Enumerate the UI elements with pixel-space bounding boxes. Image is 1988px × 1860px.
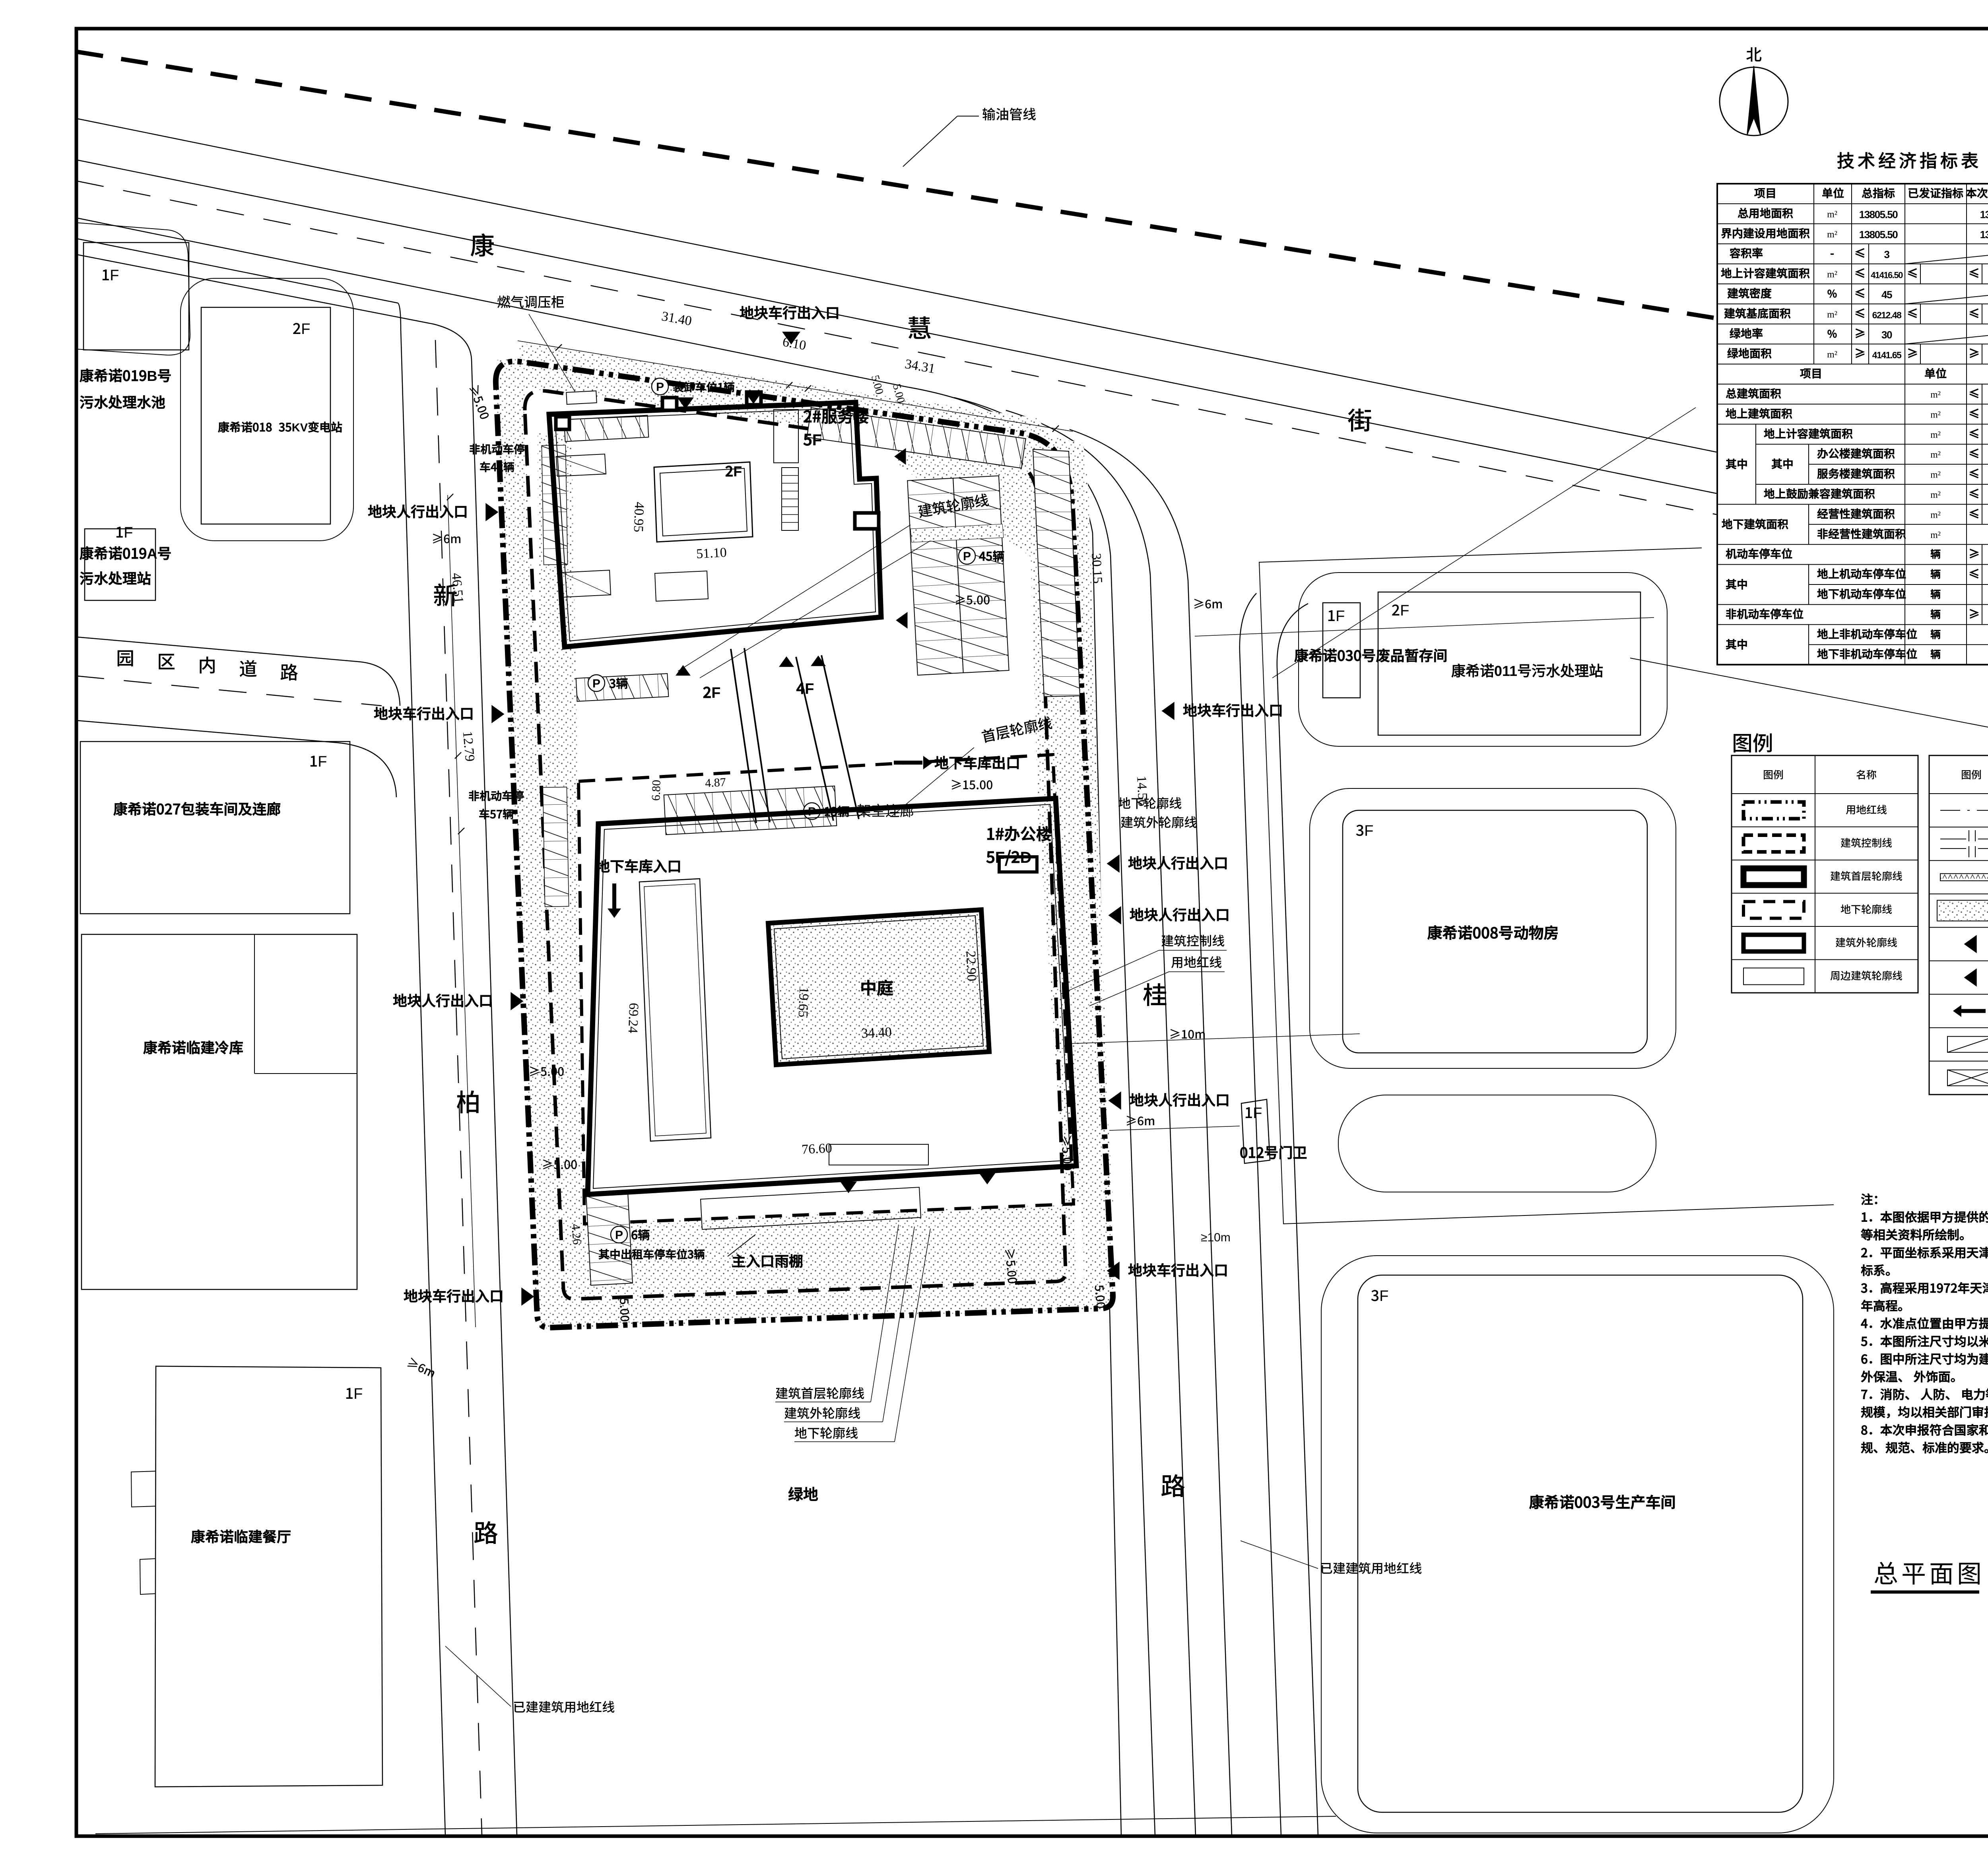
svg-text:6212.48: 6212.48 [1872,310,1902,320]
svg-text:012号门卫: 012号门卫 [1240,1142,1307,1162]
svg-text:≥10m: ≥10m [1201,1231,1231,1244]
svg-text:≥: ≥ [1907,345,1918,361]
svg-text:辆: 辆 [1930,586,1941,601]
svg-text:绿地面积: 绿地面积 [1727,345,1772,361]
svg-text:69.24: 69.24 [625,1002,641,1033]
svg-text:康希诺003号生产车间: 康希诺003号生产车间 [1529,1490,1676,1512]
svg-text:≤: ≤ [1969,566,1980,582]
svg-text:地下机动车停车位: 地下机动车停车位 [1817,586,1906,602]
svg-text:其中出租车停车位3辆: 其中出租车停车位3辆 [598,1246,705,1262]
svg-text:m²: m² [1930,470,1941,480]
svg-text:m²: m² [1930,530,1941,540]
svg-text:地下轮廓线: 地下轮廓线 [794,1423,858,1442]
svg-text:1F: 1F [1327,604,1345,625]
svg-text:地块车行出入口: 地块车行出入口 [1128,1259,1228,1280]
svg-text:项目: 项目 [1800,365,1822,381]
svg-text:≤: ≤ [1907,265,1918,281]
svg-text:图例: 图例 [1763,767,1784,782]
svg-text:地块车行出入口: 地块车行出入口 [374,703,474,723]
svg-text:≥: ≥ [1854,325,1866,341]
svg-text:建筑基底面积: 建筑基底面积 [1724,305,1791,321]
svg-text:地下车库入口: 地下车库入口 [596,855,681,876]
svg-text:2F: 2F [703,680,721,702]
svg-text:m²: m² [1930,510,1941,520]
svg-text:建筑控制线: 建筑控制线 [1840,835,1892,850]
svg-text:康希诺019B号: 康希诺019B号 [79,365,172,385]
svg-text:5．本图所注尺寸均以米为单位。: 5．本图所注尺寸均以米为单位。 [1861,1332,1988,1349]
svg-text:P: P [615,1229,623,1242]
svg-text:地块车行出入口: 地块车行出入口 [404,1285,504,1306]
svg-text:辆: 辆 [1930,546,1941,561]
svg-text:内: 内 [198,651,216,678]
svg-text:4.87: 4.87 [705,776,726,790]
svg-text:2．平面坐标系采用天津市2000年任意直角坐: 2．平面坐标系采用天津市2000年任意直角坐 [1861,1243,1988,1261]
svg-text:桂: 桂 [1143,975,1167,1011]
svg-text:3: 3 [1884,249,1890,260]
svg-text:19.65: 19.65 [796,986,812,1017]
svg-text:8．本次申报符合国家和天津市相关法律、法: 8．本次申报符合国家和天津市相关法律、法 [1861,1420,1988,1438]
svg-text:地块人行出入口: 地块人行出入口 [1130,904,1230,924]
svg-text:康希诺019A号: 康希诺019A号 [79,542,172,563]
svg-text:≥15.00: ≥15.00 [950,775,993,793]
svg-text:3．高程采用1972年天津市大沽高程系， 2015: 3．高程采用1972年天津市大沽高程系， 2015 [1861,1278,1988,1296]
svg-text:技术经济指标表: 技术经济指标表 [1837,151,1982,171]
svg-text:m²: m² [1827,209,1837,219]
svg-text:地下非机动车停车位: 地下非机动车停车位 [1817,646,1917,662]
svg-text:装卸车位1辆: 装卸车位1辆 [673,379,735,395]
svg-text:≥5.00: ≥5.00 [1058,1134,1077,1171]
svg-text:建筑外轮廓线: 建筑外轮廓线 [1835,935,1897,949]
svg-text:地上非机动车停车位: 地上非机动车停车位 [1817,626,1917,642]
svg-text:3辆: 3辆 [609,674,628,691]
svg-text:车42辆: 车42辆 [480,459,514,475]
svg-text:总用地面积: 总用地面积 [1738,205,1793,221]
svg-text:≥5.00: ≥5.00 [542,1155,577,1173]
svg-text:≤: ≤ [1969,466,1980,482]
svg-text:外保温、 外饰面。: 外保温、 外饰面。 [1860,1367,1963,1385]
svg-text:P: P [656,381,664,394]
svg-text:总指标: 总指标 [1862,185,1895,201]
svg-text:1F: 1F [345,1381,363,1403]
svg-text:≤: ≤ [1907,305,1918,321]
svg-text:1．本图依据甲方提供的核定用地图，现状图: 1．本图依据甲方提供的核定用地图，现状图 [1861,1208,1988,1225]
svg-text:用地红线: 用地红线 [1171,953,1222,971]
svg-text:5F: 5F [803,427,822,450]
svg-text:燃气调压柜: 燃气调压柜 [497,291,565,311]
svg-text:m²: m² [1827,270,1837,280]
svg-text:机动车停车位: 机动车停车位 [1726,546,1792,561]
svg-text:3F: 3F [1356,818,1374,840]
svg-text:4．水准点位置由甲方提供。: 4．水准点位置由甲方提供。 [1861,1314,1988,1332]
svg-text:2F: 2F [725,460,742,481]
svg-text:规模，均以相关部门审批结果为准。: 规模，均以相关部门审批结果为准。 [1861,1402,1988,1420]
svg-text:≥6m: ≥6m [431,529,461,547]
svg-text:m²: m² [1827,229,1837,240]
svg-text:名称: 名称 [1856,767,1877,782]
svg-text:单位: 单位 [1822,185,1844,201]
svg-text:路: 路 [1161,1466,1185,1502]
svg-text:北: 北 [1746,42,1762,65]
svg-text:地块人行出入口: 地块人行出入口 [393,990,493,1010]
svg-text:m²: m² [1827,349,1837,360]
svg-text:康希诺008号动物房: 康希诺008号动物房 [1427,921,1559,943]
svg-text:1F: 1F [115,520,133,542]
svg-text:2F: 2F [293,316,311,338]
svg-text:地下车库出口: 地下车库出口 [934,752,1020,773]
svg-text:建筑密度: 建筑密度 [1727,285,1772,301]
svg-text:容积率: 容积率 [1729,245,1763,261]
svg-text:≥: ≥ [1969,345,1980,361]
svg-text:2#服务楼: 2#服务楼 [803,404,870,427]
svg-text:6辆: 6辆 [631,1225,650,1243]
svg-text:区: 区 [157,648,175,674]
svg-text:≤: ≤ [1854,285,1866,301]
svg-text:输油管线: 输油管线 [982,104,1036,123]
svg-text:周边建筑轮廓线: 周边建筑轮廓线 [1830,968,1903,983]
svg-text:6.80: 6.80 [649,780,663,801]
svg-text:辆: 辆 [1930,647,1941,661]
svg-text:图例: 图例 [1961,767,1982,782]
svg-text:30.15: 30.15 [1089,553,1105,584]
svg-text:30: 30 [1881,329,1892,341]
svg-text:非机动车停: 非机动车停 [468,788,524,804]
svg-text:康希诺030号废品暂存间: 康希诺030号废品暂存间 [1294,645,1448,665]
svg-text:≤: ≤ [1969,405,1980,421]
svg-text:界内建设用地面积: 界内建设用地面积 [1721,225,1810,241]
svg-text:%: % [1827,326,1837,341]
svg-text:地块车行出入口: 地块车行出入口 [1183,699,1283,720]
svg-text:≥5.00: ≥5.00 [954,590,990,608]
svg-text:地下建筑面积: 地下建筑面积 [1722,516,1788,532]
svg-text:地下轮廓线: 地下轮廓线 [1118,794,1182,812]
svg-text:45辆: 45辆 [979,547,1004,564]
svg-text:地块人行出入口: 地块人行出入口 [368,501,468,521]
svg-text:-: - [1830,245,1834,261]
svg-text:≤: ≤ [1854,265,1866,281]
svg-text:康希诺临建餐厅: 康希诺临建餐厅 [190,1526,291,1546]
svg-text:项目: 项目 [1754,185,1776,201]
svg-text:≥5.00: ≥5.00 [528,1062,564,1079]
svg-text:≥: ≥ [1854,345,1866,361]
svg-text:单位: 单位 [1924,365,1947,381]
svg-text:用地红线: 用地红线 [1846,802,1887,817]
svg-text:5.00: 5.00 [1091,1284,1110,1309]
svg-text:标系。: 标系。 [1861,1260,1898,1278]
svg-text:4141.65: 4141.65 [1872,350,1902,360]
svg-text:其中: 其中 [1726,636,1748,652]
svg-text:1F: 1F [309,749,327,771]
svg-text:13805.50: 13805.50 [1980,208,1988,220]
svg-text:绿地: 绿地 [788,1482,818,1504]
svg-text:康希诺027包装车间及连廊: 康希诺027包装车间及连廊 [113,798,281,819]
svg-text:路: 路 [474,1513,498,1549]
svg-text:5F/2D: 5F/2D [986,845,1032,868]
svg-text:建筑首层轮廓线: 建筑首层轮廓线 [775,1384,864,1402]
svg-text:≤: ≤ [1969,265,1980,281]
svg-text:46.51: 46.51 [449,572,466,604]
svg-text:已建建筑用地红线: 已建建筑用地红线 [513,1697,615,1716]
svg-text:m²: m² [1930,450,1941,460]
svg-text:m²: m² [1827,309,1837,320]
svg-text:45: 45 [1881,289,1892,301]
svg-text:4.26: 4.26 [569,1223,584,1245]
svg-text:康希诺018 35KV变电站: 康希诺018 35KV变电站 [218,418,342,435]
svg-text:地块人行出入口: 地块人行出入口 [1130,1089,1230,1110]
svg-text:地上鼓励兼容建筑面积: 地上鼓励兼容建筑面积 [1764,485,1875,501]
svg-text:m²: m² [1930,430,1941,440]
svg-text:≤: ≤ [1969,305,1980,321]
svg-text:地上计容建筑面积: 地上计容建筑面积 [1721,265,1810,281]
svg-text:建筑外轮廓线: 建筑外轮廓线 [784,1404,860,1422]
svg-text:≤: ≤ [1969,445,1980,461]
svg-text:已建建筑用地红线: 已建建筑用地红线 [1320,1559,1422,1577]
svg-text:注：: 注： [1861,1190,1885,1208]
svg-text:m²: m² [1930,410,1941,420]
svg-text:服务楼建筑面积: 服务楼建筑面积 [1817,466,1895,482]
svg-text:m²: m² [1930,490,1941,500]
svg-text:其中: 其中 [1771,456,1794,472]
svg-text:22.90: 22.90 [963,951,979,982]
svg-text:其中: 其中 [1726,576,1748,592]
svg-text:40.95: 40.95 [631,501,647,532]
svg-text:路: 路 [280,658,298,685]
svg-text:≥6m: ≥6m [1125,1111,1155,1129]
svg-text:建筑外轮廓线: 建筑外轮廓线 [1120,813,1197,831]
svg-text:地上计容建筑面积: 地上计容建筑面积 [1764,425,1853,441]
svg-text:主入口雨棚: 主入口雨棚 [732,1250,803,1271]
svg-text:7．消防、 人防、 电力等附属设施的布局和: 7．消防、 人防、 电力等附属设施的布局和 [1861,1385,1988,1403]
svg-text:6．图中所注尺寸均为建筑物外轮廓尺寸，含: 6．图中所注尺寸均为建筑物外轮廓尺寸，含 [1861,1349,1988,1367]
svg-text:%: % [1827,286,1837,301]
svg-text:本次申报指标: 本次申报指标 [1965,185,1988,201]
svg-text:13805.50: 13805.50 [1980,229,1988,241]
svg-text:建筑首层轮廓线: 建筑首层轮廓线 [1830,868,1903,883]
svg-text:≤: ≤ [1969,485,1980,501]
svg-text:51.10: 51.10 [696,545,727,561]
svg-text:1F: 1F [1244,1101,1262,1122]
svg-text:慧: 慧 [907,309,932,344]
svg-text:地块车行出入口: 地块车行出入口 [740,302,840,322]
svg-text:总平面图: 总平面图 [1873,1561,1985,1588]
svg-text:污水处理水池: 污水处理水池 [80,391,165,412]
svg-text:2F: 2F [1392,598,1409,620]
svg-text:1F: 1F [101,263,119,285]
svg-text:≥5.00: ≥5.00 [1002,1247,1022,1285]
svg-text:其中: 其中 [1726,456,1748,472]
svg-text:等相关资料所绘制。: 等相关资料所绘制。 [1860,1225,1972,1243]
svg-text:经营性建筑面积: 经营性建筑面积 [1817,505,1895,521]
svg-text:康希诺011号污水处理站: 康希诺011号污水处理站 [1451,663,1603,679]
svg-text:辆: 辆 [1930,606,1941,621]
svg-text:已发证指标: 已发证指标 [1908,185,1963,201]
svg-text:建筑控制线: 建筑控制线 [1161,931,1225,949]
svg-text:4F: 4F [796,676,814,698]
svg-text:办公楼建筑面积: 办公楼建筑面积 [1817,445,1895,461]
svg-text:76.60: 76.60 [801,1141,832,1157]
svg-text:年高程。: 年高程。 [1861,1296,1910,1314]
svg-text:街: 街 [1347,401,1372,437]
svg-text:非机动车停: 非机动车停 [469,441,525,457]
svg-text:规、规范、标准的要求。: 规、规范、标准的要求。 [1861,1438,1988,1456]
svg-text:康希诺临建冷库: 康希诺临建冷库 [143,1037,243,1057]
svg-text:13805.50: 13805.50 [1859,229,1898,241]
svg-text:中庭: 中庭 [860,975,893,999]
svg-text:≥: ≥ [1969,546,1980,561]
svg-text:≤: ≤ [1969,425,1980,441]
svg-text:5.00: 5.00 [616,1298,635,1322]
svg-text:道: 道 [239,655,257,681]
svg-text:图例: 图例 [1732,727,1773,757]
svg-text:41416.50: 41416.50 [1871,270,1903,280]
svg-text:≤: ≤ [1854,245,1866,261]
svg-text:园: 园 [116,644,134,670]
svg-text:污水处理站: 污水处理站 [80,567,151,588]
svg-text:13805.50: 13805.50 [1859,208,1898,220]
svg-text:P: P [963,550,971,563]
svg-text:康: 康 [470,226,495,262]
svg-text:m²: m² [1930,390,1941,400]
svg-text:辆: 辆 [1930,627,1941,641]
svg-text:≥: ≥ [1969,606,1980,621]
svg-text:12.79: 12.79 [460,730,478,762]
svg-text:P: P [592,677,600,690]
svg-text:地下轮廓线: 地下轮廓线 [1840,902,1892,916]
svg-text:车57辆: 车57辆 [479,806,514,822]
svg-text:1#办公楼: 1#办公楼 [986,821,1052,845]
svg-text:总建筑面积: 总建筑面积 [1726,385,1781,401]
svg-text:3F: 3F [1371,1283,1389,1305]
svg-text:≤: ≤ [1969,385,1980,401]
svg-text:绿地率: 绿地率 [1730,325,1763,341]
svg-text:地上机动车停车位: 地上机动车停车位 [1817,566,1906,582]
svg-text:≤: ≤ [1969,505,1980,521]
svg-text:≥6m: ≥6m [1193,594,1223,612]
svg-text:辆: 辆 [1930,567,1941,581]
svg-text:≤: ≤ [1854,305,1866,321]
svg-text:34.40: 34.40 [861,1025,892,1041]
svg-text:非机动车停车位: 非机动车停车位 [1726,606,1804,621]
svg-text:地上建筑面积: 地上建筑面积 [1726,405,1792,421]
svg-text:地块人行出入口: 地块人行出入口 [1128,852,1228,873]
svg-text:非经营性建筑面积: 非经营性建筑面积 [1817,526,1906,542]
